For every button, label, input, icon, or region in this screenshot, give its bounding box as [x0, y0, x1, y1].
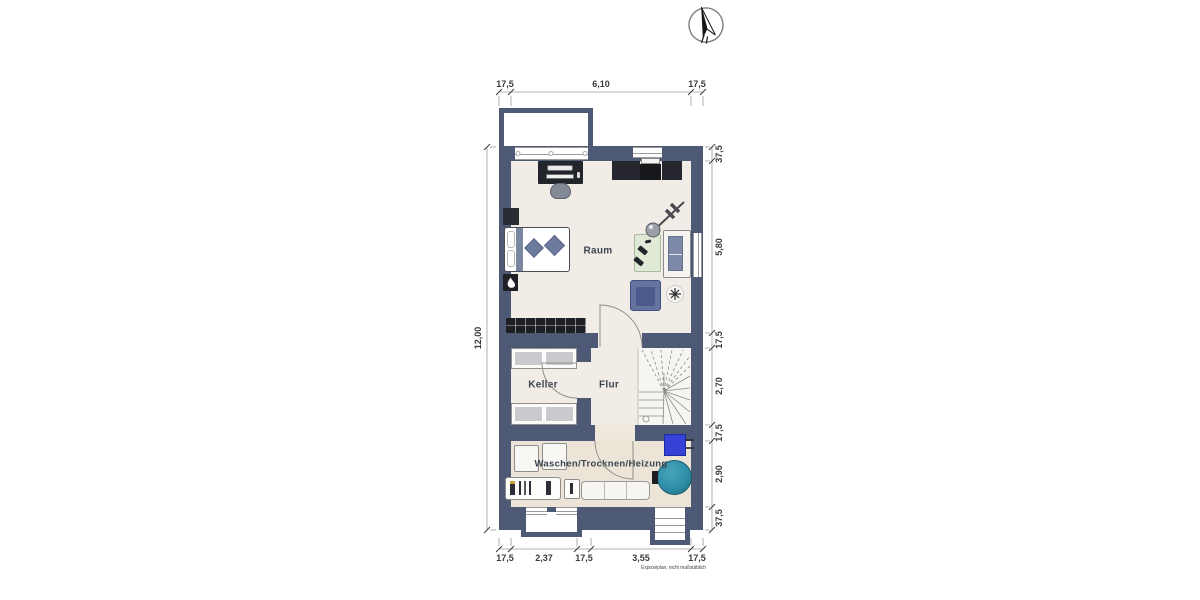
wall-right	[691, 146, 703, 530]
wall-keller-east-top	[577, 348, 591, 362]
desk	[538, 161, 583, 184]
mouse	[577, 172, 580, 178]
dim-right-6: 2,90	[714, 465, 724, 483]
monitor	[547, 165, 573, 171]
wall-keller-east-bottom	[577, 398, 591, 425]
north-arrow-icon	[685, 3, 727, 47]
heater-box	[664, 434, 686, 456]
door-gap-keller	[577, 362, 591, 398]
room-label-flur: Flur	[599, 380, 619, 391]
keller-shelf-top	[511, 348, 577, 369]
dim-top-3: 17,5	[688, 79, 706, 89]
dim-line-top	[496, 89, 706, 106]
keller-shelf-bottom	[511, 403, 577, 425]
wall-raum-south-left	[511, 333, 598, 348]
wardrobe-shelf-strip	[641, 158, 660, 164]
dim-left-1: 12,00	[473, 327, 483, 350]
bed	[504, 227, 570, 272]
armchair-seat	[636, 287, 655, 306]
dim-right-7: 37,5	[714, 509, 724, 527]
sideboard	[506, 318, 586, 333]
dim-bottom-4: 3,55	[632, 553, 650, 563]
wardrobe-left	[612, 161, 640, 180]
wardrobe-right	[662, 161, 682, 180]
armchair	[630, 280, 661, 311]
floor-plan: Raum Keller Flur Waschen/Trocknen/Heizun…	[0, 0, 1200, 600]
dim-bottom-3: 17,5	[575, 553, 593, 563]
keyboard	[546, 174, 574, 179]
window-bottom-1	[526, 507, 547, 515]
entry-steps	[650, 513, 690, 545]
bed-head-cushion-2	[507, 250, 515, 267]
light-well-bottom	[521, 512, 582, 537]
dim-right-1: 37,5	[714, 145, 724, 163]
drying-rack	[505, 477, 561, 500]
bed-headboard-band	[516, 228, 523, 271]
door-gap-waschen	[595, 425, 635, 441]
wall-raum-south-right	[642, 333, 691, 348]
dim-line-left	[484, 144, 496, 533]
stairwell-floor	[638, 348, 691, 425]
sofa-cushions	[668, 236, 683, 271]
dim-bottom-5: 17,5	[688, 553, 706, 563]
nightstand	[503, 208, 519, 225]
sofa-right	[663, 230, 691, 278]
window-right-raum	[693, 233, 702, 277]
dim-right-4: 2,70	[714, 377, 724, 395]
dim-bottom-2: 2,37	[535, 553, 553, 563]
dim-right-3: 17,5	[714, 331, 724, 349]
bed-head-cushion-1	[507, 231, 515, 248]
wall-flur-south-left	[511, 425, 595, 441]
footnote-disclaimer: Exposéplan, nicht maßstäblich	[641, 565, 706, 571]
window-top-right	[633, 147, 662, 158]
dim-bottom-1: 17,5	[496, 553, 514, 563]
wardrobe-mid	[640, 164, 661, 180]
wall-left	[499, 146, 511, 530]
door-gap-raum	[598, 333, 642, 348]
laundry-bin	[503, 274, 518, 291]
dim-top-1: 17,5	[496, 79, 514, 89]
bed-pillow-2	[544, 235, 565, 256]
light-well-top	[499, 108, 593, 146]
window-top-main	[515, 147, 588, 160]
bench	[581, 481, 650, 500]
room-label-raum: Raum	[584, 246, 613, 257]
dim-right-5: 17,5	[714, 424, 724, 442]
room-label-waschen: Waschen/Trocknen/Heizung	[534, 459, 667, 470]
window-bottom-2	[556, 507, 577, 515]
desk-chair	[550, 183, 571, 199]
bed-pillow-1	[524, 238, 544, 258]
dim-top-2: 6,10	[592, 79, 610, 89]
room-label-keller: Keller	[528, 380, 558, 391]
drying-rack-small	[564, 479, 580, 499]
exercise-mat	[634, 234, 661, 272]
dim-right-2: 5,80	[714, 238, 724, 256]
